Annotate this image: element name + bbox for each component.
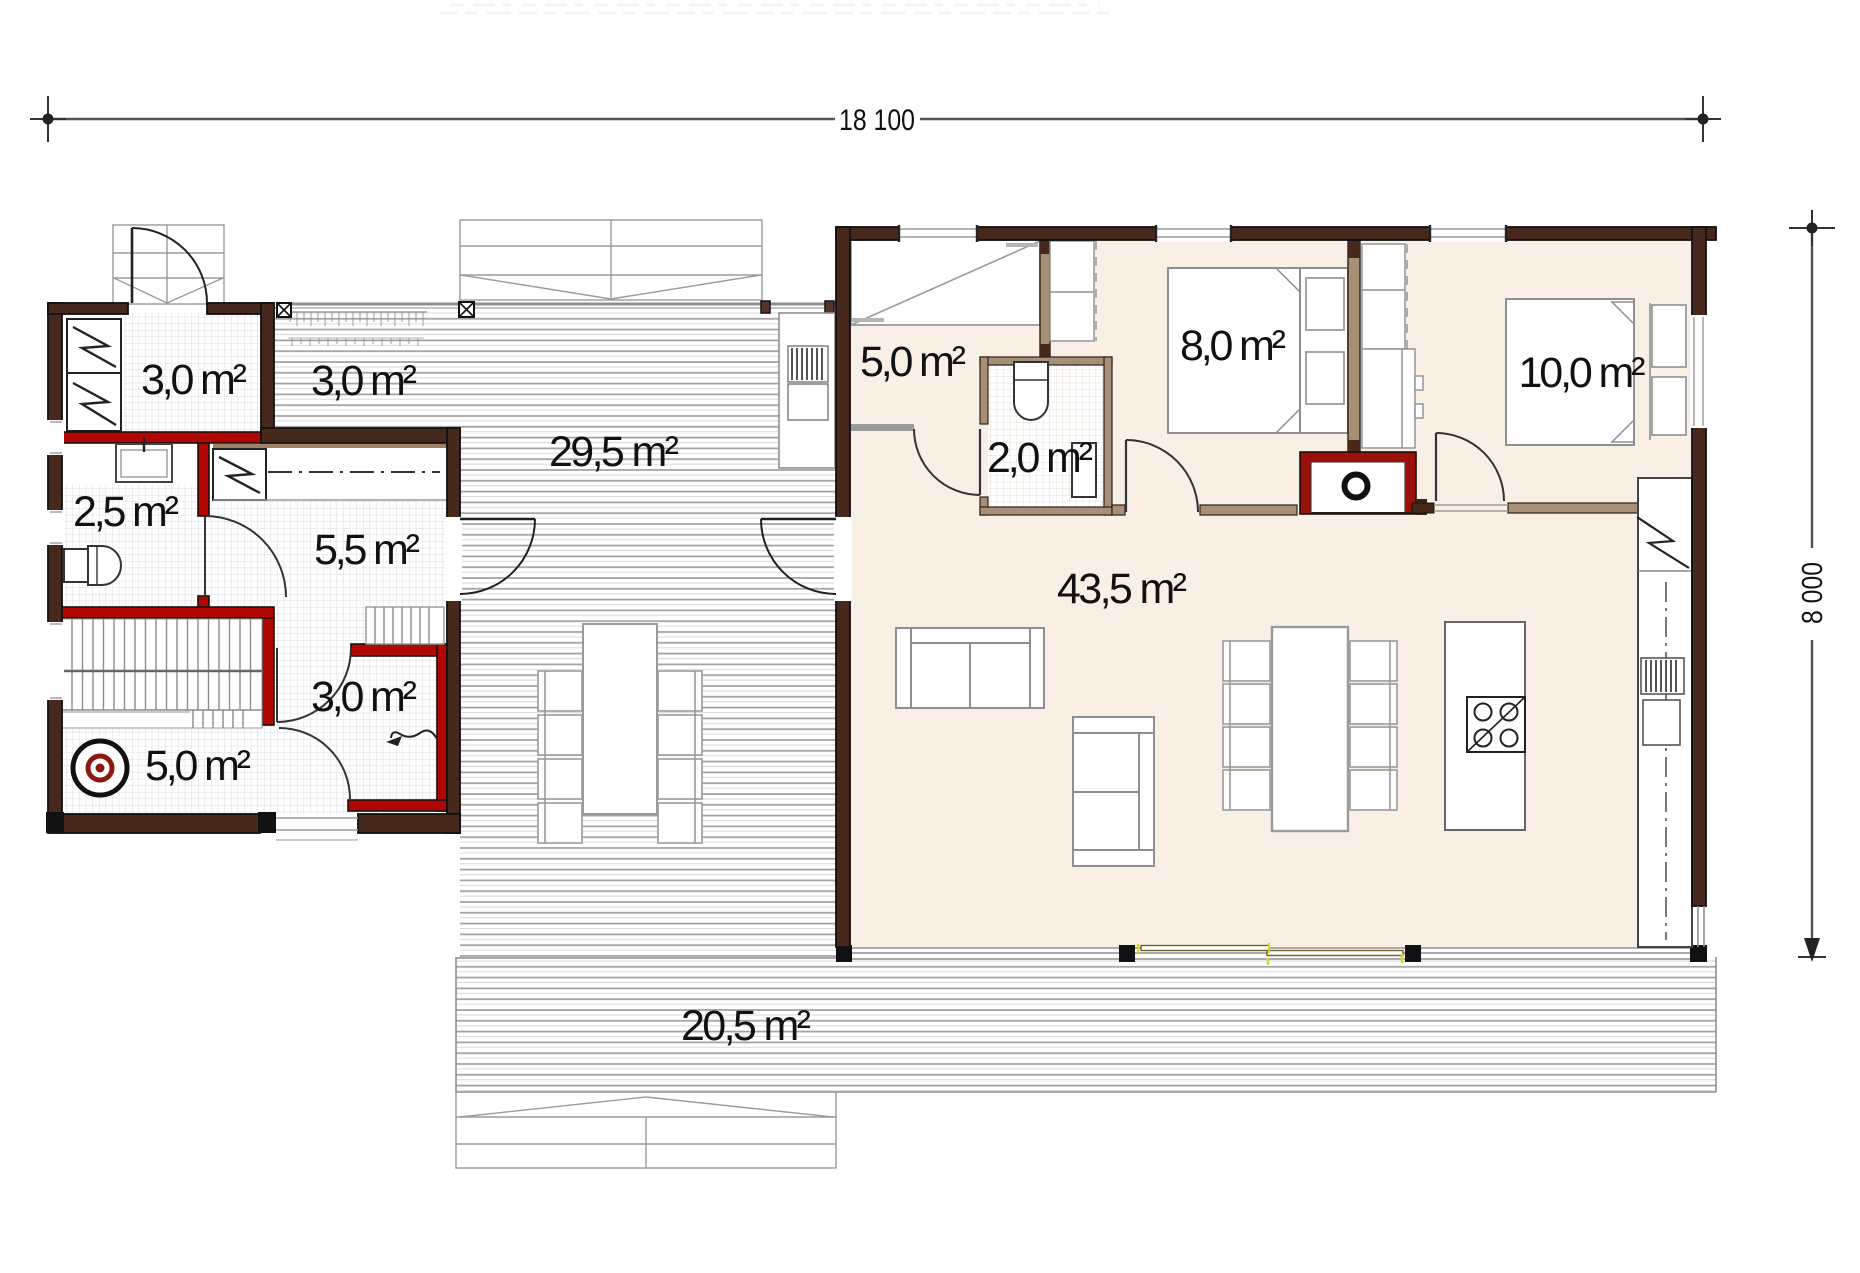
svg-text:43,5 m²: 43,5 m²: [1057, 565, 1187, 613]
svg-text:10,0 m²: 10,0 m²: [1519, 349, 1646, 397]
svg-text:3,0 m²: 3,0 m²: [141, 356, 247, 404]
svg-text:5,0 m²: 5,0 m²: [860, 338, 966, 386]
svg-text:3,0 m²: 3,0 m²: [311, 673, 417, 721]
svg-text:8,0 m²: 8,0 m²: [1180, 322, 1286, 370]
svg-text:5,0 m²: 5,0 m²: [145, 742, 251, 790]
svg-text:8 000: 8 000: [1797, 562, 1829, 624]
svg-text:2,0 m²: 2,0 m²: [987, 434, 1093, 482]
svg-text:2,5 m²: 2,5 m²: [73, 488, 179, 536]
svg-text:3,0 m²: 3,0 m²: [311, 357, 417, 405]
svg-text:18 100: 18 100: [839, 104, 915, 137]
svg-text:20,5 m²: 20,5 m²: [681, 1002, 811, 1050]
svg-text:29,5 m²: 29,5 m²: [549, 428, 679, 476]
svg-text:5,5 m²: 5,5 m²: [314, 526, 420, 574]
